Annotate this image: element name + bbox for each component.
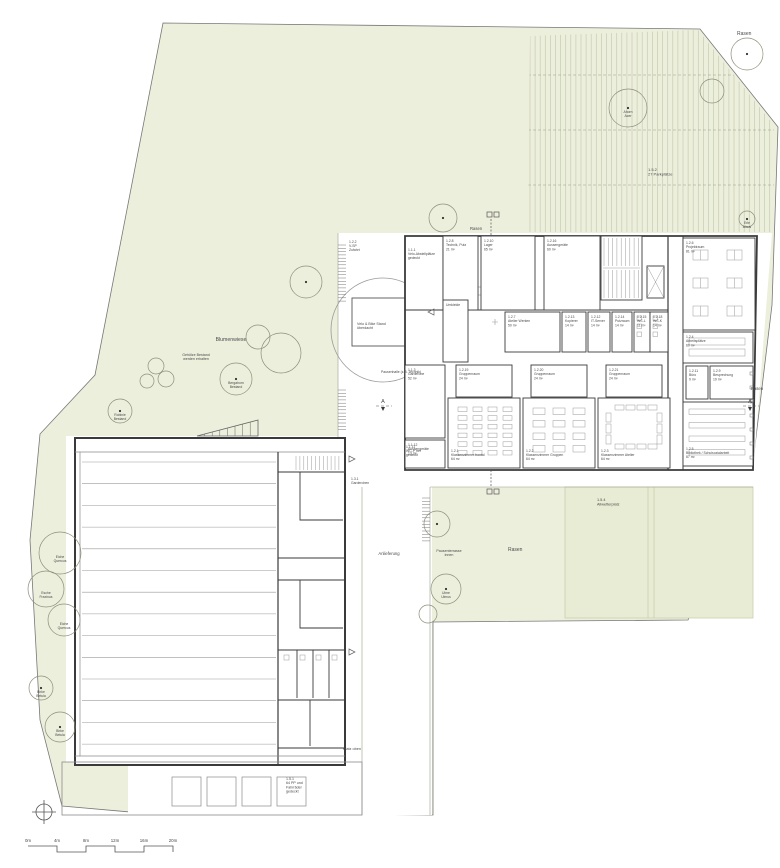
room-label-line: 11 m²: [637, 323, 646, 327]
room-label-line: 14 m²: [653, 323, 663, 327]
tree-label: BirkeBetula: [55, 729, 65, 737]
tree-label: AhornAcer: [623, 110, 632, 118]
tree-label: RobinieBestand: [114, 413, 127, 421]
tree-label-line: Alnus: [743, 225, 752, 229]
tree-trunk: [445, 588, 447, 590]
school-rooms: 1.2.8Technik, Putz21 m²1.2.10Lager65 m²1…: [405, 236, 755, 468]
section-letter: A: [748, 399, 752, 405]
map-label-line: Garderoben: [351, 481, 369, 485]
scale-tick-label: 4m: [54, 838, 60, 843]
map-label-line: gedeckt: [406, 453, 418, 457]
scale-tick-label: 8m: [83, 838, 89, 843]
room-label-line: 65 m²: [484, 247, 494, 251]
tree-label: BirkeBetula: [36, 690, 46, 698]
room-label-line: 14 m²: [591, 323, 601, 327]
room-label-line: 60 m²: [686, 343, 696, 347]
room-label-line: 50 m²: [508, 323, 518, 327]
room-label: 1.2.15WC-L11 m²: [637, 315, 647, 327]
tree-trunk: [305, 281, 307, 283]
map-label-line: überdacht: [357, 326, 373, 330]
room-label-line: 64 m²: [601, 457, 611, 461]
tree-label-line: Quercus: [58, 626, 71, 630]
scale-tick-label: 20m: [169, 838, 178, 843]
room-label-line: 64 m²: [451, 457, 461, 461]
room-label-line: 60 m²: [547, 247, 557, 251]
room-label: 1.2.10Lager65 m²: [484, 239, 494, 251]
room-label-line: 14 m²: [615, 323, 625, 327]
room-label-line: 64 m²: [526, 457, 536, 461]
map-label-line: Pausenhalle (z.B. Technik): [381, 370, 421, 374]
map-label: Pausenhalle (z.B. Technik): [381, 370, 421, 374]
map-label-line: gedeckt: [286, 790, 299, 794]
tree-trunk: [746, 218, 748, 220]
room-label-line: 24 m²: [459, 376, 469, 380]
tree-trunk: [436, 523, 438, 525]
tree-label-line: Betula: [36, 694, 46, 698]
room-label-line: 21 m²: [446, 247, 456, 251]
map-label-line: Platz oben: [343, 747, 361, 751]
map-label: Gehölze Bestandwerden erhalten: [182, 353, 210, 361]
map-label-line: innen: [445, 553, 454, 557]
map-label: Blumenwiese: [216, 337, 247, 343]
map-label-line: Rasen: [751, 386, 764, 391]
map-label-line: Allwetterplatz: [597, 502, 620, 506]
map-label: Anlieferung: [378, 551, 400, 556]
map-label-line: gedeckt: [408, 256, 420, 260]
section-letter: A: [381, 399, 385, 405]
tree-trunk: [746, 53, 748, 55]
tree-trunk: [442, 217, 444, 219]
room-label-line: 24 m²: [534, 376, 544, 380]
scale-line: [28, 846, 173, 852]
tree-trunk: [40, 687, 42, 689]
road-south: [362, 762, 432, 815]
room-label-line: 24 m²: [609, 376, 619, 380]
scale-tick-label: 0m: [25, 838, 31, 843]
tree-trunk: [627, 107, 629, 109]
tree-label: BergahornBestand: [228, 381, 244, 389]
allweather-field: [565, 487, 753, 618]
map-label-line: 1.5.4: [597, 498, 605, 502]
map-label-line: 27 Parkplätze: [648, 172, 673, 177]
tree-label-line: Acer: [625, 114, 633, 118]
room-label-line: Umkleide: [446, 303, 460, 307]
map-label: Platz oben: [343, 747, 361, 751]
tree-label: UlmeUlmus: [441, 591, 451, 599]
tree-label-line: Bestand: [230, 385, 243, 389]
room: [443, 300, 468, 362]
map-label: Rasen: [508, 547, 523, 553]
room-label-line: 14 m²: [565, 323, 575, 327]
room-label-line: 52 m²: [408, 376, 418, 380]
site-plan-canvas: 1.2.8Technik, Putz21 m²1.2.10Lager65 m²1…: [0, 0, 780, 868]
room-label-line: 81 m²: [686, 249, 696, 253]
site-plan: 1.2.8Technik, Putz21 m²1.2.10Lager65 m²1…: [0, 0, 780, 868]
room-label: Umkleide: [446, 303, 460, 307]
room-label: 1.2.18WC-K14 m²: [653, 315, 663, 327]
tree-label-line: Betula: [55, 733, 65, 737]
scale-bar: 0m4m8m12m16m20m: [25, 838, 178, 852]
tree-trunk: [59, 726, 61, 728]
carport-floor: [128, 762, 362, 815]
map-label-line: Blumenwiese: [216, 337, 247, 343]
map-label-line: Anlieferung: [378, 551, 400, 556]
north-symbol: [32, 800, 56, 824]
map-label-line: Rasen: [470, 226, 483, 231]
scale-tick-label: 12m: [111, 838, 120, 843]
tree-label-line: Ulmus: [441, 595, 451, 599]
tree-label-line: Quercus: [54, 559, 67, 563]
map-label: Rasen: [737, 31, 752, 37]
map-label-line: Rasen: [508, 547, 523, 553]
map-label-line: Zufahrt: [349, 248, 360, 252]
map-label-line: werden erhalten: [183, 357, 209, 361]
tree-trunk: [235, 378, 237, 380]
tree-label-line: Fraxinus: [39, 595, 52, 599]
room-label-line: 9 m²: [689, 377, 697, 381]
map-label: Rasen: [751, 386, 764, 391]
tree-trunk: [119, 410, 121, 412]
room-label-line: 19 m²: [713, 377, 723, 381]
tree-label-line: Bestand: [114, 417, 127, 421]
map-label: Rasen: [470, 226, 483, 231]
map-label-line: Rasen: [737, 31, 752, 37]
scale-tick-label: 16m: [140, 838, 149, 843]
room-label-line: 87 m²: [686, 455, 696, 459]
sports-hall: [75, 438, 345, 765]
